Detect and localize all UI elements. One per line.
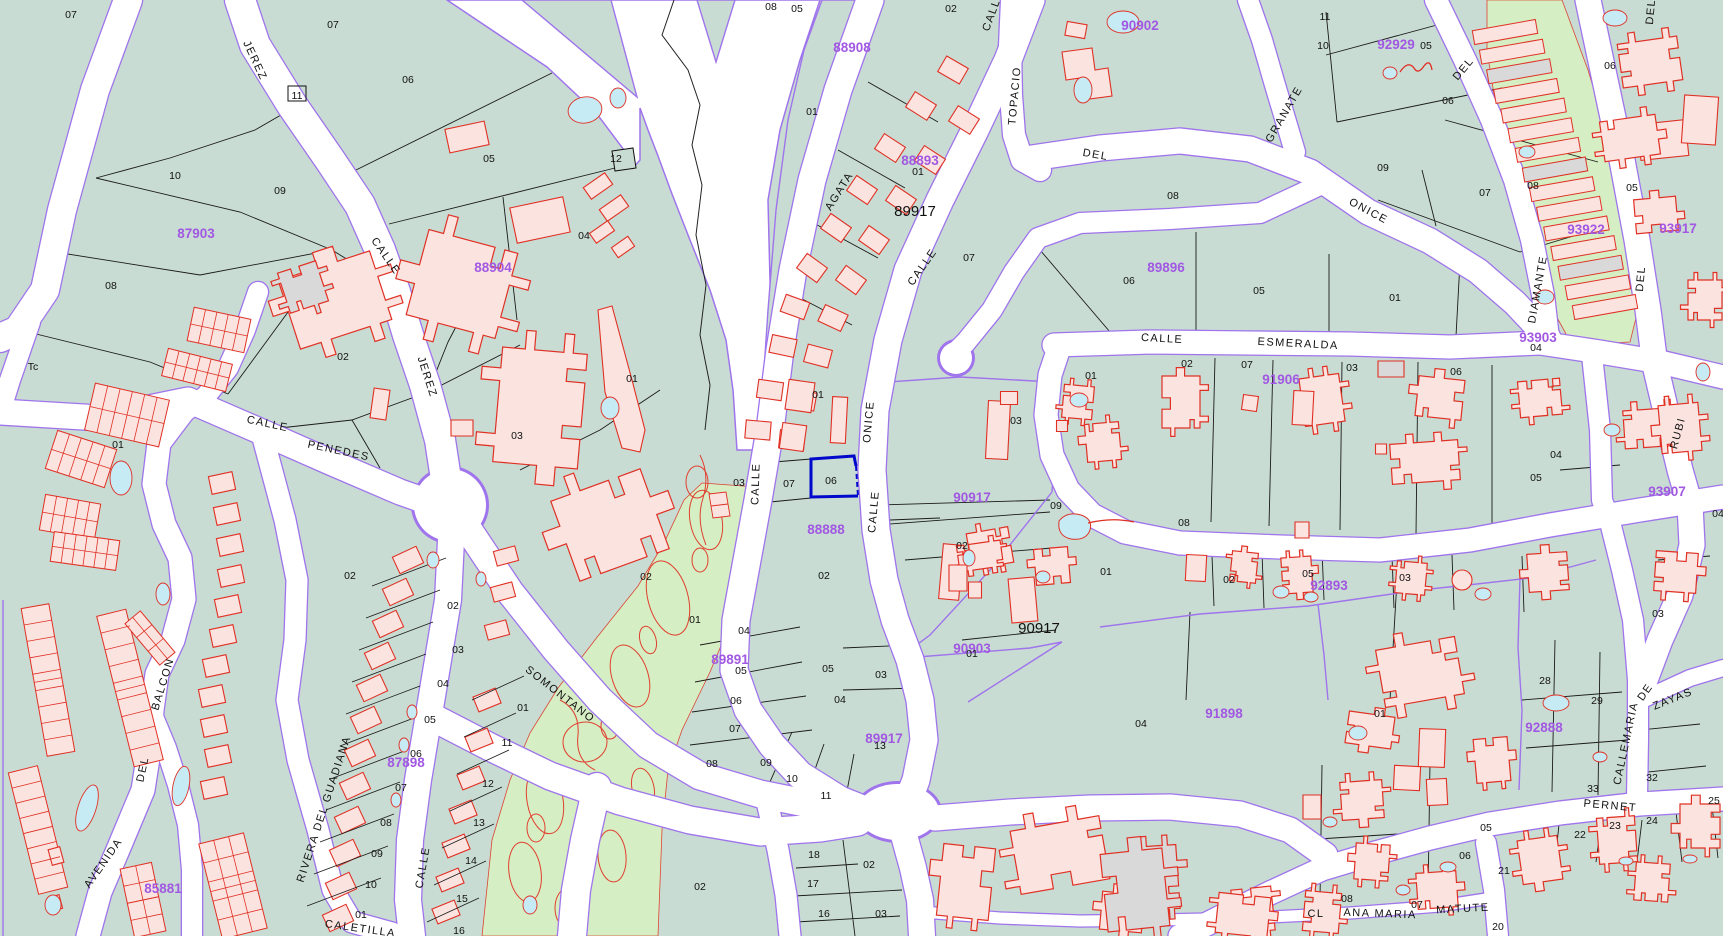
svg-text:07: 07 [327,19,339,31]
svg-text:88888: 88888 [807,522,845,537]
svg-text:12: 12 [482,778,494,790]
svg-text:04: 04 [1135,718,1147,730]
svg-text:03: 03 [875,908,887,920]
svg-text:07: 07 [729,723,741,735]
svg-text:92888: 92888 [1525,720,1563,735]
svg-text:03: 03 [1652,608,1664,620]
svg-text:02: 02 [447,600,459,612]
svg-text:04: 04 [578,230,590,242]
svg-text:06: 06 [410,748,422,760]
svg-text:CALLE: CALLE [749,463,762,506]
svg-text:13: 13 [473,817,485,829]
svg-text:89896: 89896 [1147,260,1185,275]
svg-text:05: 05 [1626,182,1638,194]
svg-text:29: 29 [1591,695,1603,707]
svg-text:01: 01 [966,648,978,660]
svg-text:25: 25 [1708,795,1720,807]
svg-text:02: 02 [694,881,706,893]
svg-text:05: 05 [483,153,495,165]
svg-text:06: 06 [1442,95,1454,107]
svg-text:93922: 93922 [1567,222,1605,237]
svg-text:07: 07 [963,252,975,264]
svg-text:11: 11 [1320,11,1331,23]
svg-text:92893: 92893 [1310,578,1348,593]
svg-text:04: 04 [1530,342,1542,354]
svg-text:04: 04 [437,678,449,690]
svg-text:01: 01 [812,389,824,401]
svg-text:14: 14 [465,855,477,867]
svg-text:01: 01 [689,614,701,626]
svg-text:01: 01 [1085,370,1097,382]
svg-text:23: 23 [1609,820,1621,832]
svg-text:02: 02 [1223,574,1235,586]
svg-text:06: 06 [1450,366,1462,378]
svg-text:03: 03 [1010,415,1022,427]
svg-text:02: 02 [956,540,968,552]
svg-text:10: 10 [1317,40,1329,52]
svg-text:15: 15 [456,893,468,905]
svg-text:05: 05 [1253,285,1265,297]
svg-text:01: 01 [806,106,818,118]
svg-text:06: 06 [1123,275,1135,287]
svg-text:33: 33 [1587,783,1599,795]
svg-text:03: 03 [875,669,887,681]
svg-text:09: 09 [274,185,286,197]
svg-text:08: 08 [380,817,392,829]
svg-text:ANA MARIA: ANA MARIA [1343,907,1417,922]
svg-text:07: 07 [1479,187,1491,199]
svg-text:91906: 91906 [1262,372,1300,387]
svg-text:08: 08 [1527,180,1539,192]
svg-text:01: 01 [1389,292,1401,304]
svg-text:04: 04 [738,625,750,637]
svg-text:05: 05 [822,663,834,675]
svg-text:09: 09 [1377,162,1389,174]
svg-text:08: 08 [1341,893,1353,905]
svg-text:20: 20 [1492,921,1504,933]
svg-text:07: 07 [1241,359,1253,371]
svg-text:04: 04 [1550,449,1562,461]
svg-text:06: 06 [730,695,742,707]
svg-text:89917: 89917 [894,203,936,220]
svg-text:01: 01 [626,373,638,385]
svg-text:CALLE: CALLE [1141,332,1184,346]
svg-text:92929: 92929 [1377,37,1415,52]
svg-text:03: 03 [1346,362,1358,374]
svg-text:03: 03 [1399,572,1411,584]
svg-text:09: 09 [371,848,383,860]
svg-text:02: 02 [1181,358,1193,370]
svg-text:DEL: DEL [1634,265,1648,292]
svg-text:05: 05 [791,3,803,15]
svg-text:11: 11 [821,790,832,802]
svg-text:88904: 88904 [474,260,512,275]
svg-text:93907: 93907 [1648,484,1686,499]
svg-text:93917: 93917 [1659,221,1697,236]
svg-text:02: 02 [640,571,652,583]
svg-text:01: 01 [517,702,529,714]
svg-text:87903: 87903 [177,226,215,241]
svg-text:08: 08 [105,280,117,292]
svg-text:01: 01 [112,439,124,451]
svg-text:06: 06 [1604,60,1616,72]
svg-text:06: 06 [1459,850,1471,862]
svg-text:11: 11 [502,737,513,749]
svg-text:91898: 91898 [1205,706,1243,721]
svg-text:07: 07 [395,782,407,794]
svg-text:16: 16 [453,925,465,936]
svg-text:18: 18 [808,849,820,861]
svg-text:08: 08 [1178,517,1190,529]
svg-text:Tc: Tc [28,361,39,373]
svg-text:22: 22 [1574,829,1586,841]
svg-text:90902: 90902 [1121,18,1159,33]
svg-text:06: 06 [825,475,837,487]
svg-text:08: 08 [765,1,777,13]
svg-text:05: 05 [1480,822,1492,834]
svg-text:01: 01 [1374,708,1386,720]
svg-text:24: 24 [1646,815,1658,827]
svg-text:21: 21 [1498,865,1510,877]
svg-text:02: 02 [344,570,356,582]
svg-text:09: 09 [1050,500,1062,512]
svg-text:07: 07 [1411,899,1423,911]
svg-text:01: 01 [355,909,367,921]
svg-text:05: 05 [424,714,436,726]
svg-text:01: 01 [912,166,924,178]
svg-text:11: 11 [292,90,303,102]
svg-text:10: 10 [169,170,181,182]
svg-text:02: 02 [818,570,830,582]
svg-text:90917: 90917 [1018,620,1060,637]
svg-text:90917: 90917 [953,490,991,505]
svg-text:05: 05 [735,665,747,677]
svg-text:08: 08 [1167,190,1179,202]
svg-text:08: 08 [706,758,718,770]
svg-text:05: 05 [1420,40,1432,52]
svg-text:06: 06 [402,74,414,86]
svg-text:32: 32 [1646,772,1658,784]
svg-text:04: 04 [1712,508,1723,520]
svg-text:02: 02 [863,859,875,871]
svg-text:10: 10 [786,773,798,785]
svg-text:85881: 85881 [144,881,182,896]
svg-text:DEL: DEL [1644,0,1658,25]
svg-text:07: 07 [65,9,77,21]
svg-text:88908: 88908 [833,40,871,55]
svg-text:04: 04 [834,694,846,706]
svg-text:09: 09 [760,757,772,769]
svg-text:02: 02 [337,351,349,363]
svg-text:03: 03 [733,477,745,489]
svg-text:12: 12 [610,153,622,165]
svg-text:03: 03 [511,430,523,442]
svg-text:02: 02 [945,3,957,15]
svg-text:05: 05 [1302,568,1314,580]
svg-text:16: 16 [818,908,830,920]
svg-text:07: 07 [783,478,795,490]
svg-text:03: 03 [452,644,464,656]
svg-text:05: 05 [1530,472,1542,484]
svg-text:28: 28 [1539,675,1551,687]
svg-text:01: 01 [1100,566,1112,578]
svg-text:17: 17 [807,878,819,890]
svg-text:13: 13 [874,740,886,752]
svg-text:10: 10 [365,879,377,891]
svg-text:CL: CL [1307,908,1324,920]
